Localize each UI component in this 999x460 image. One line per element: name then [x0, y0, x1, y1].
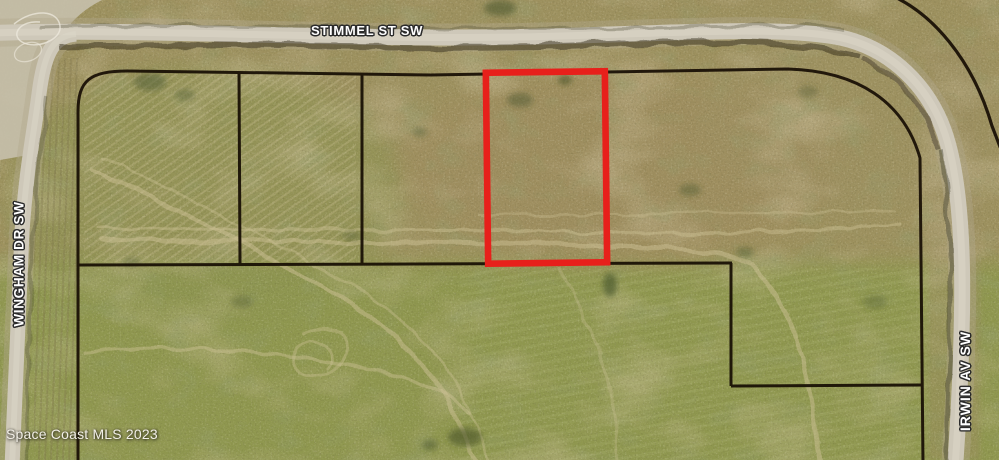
lot-divider-1	[239, 72, 240, 265]
street-label-irwin: IRWIN AV SW	[957, 331, 973, 431]
map-canvas	[0, 0, 999, 460]
street-label-wingham: WINGHAM DR SW	[12, 201, 27, 326]
street-label-stimmel: STIMMEL ST SW	[311, 23, 423, 38]
mls-watermark: Space Coast MLS 2023	[6, 426, 158, 442]
lot-line-horizontal-upper	[78, 263, 732, 265]
lot-line-horizontal-lower	[731, 385, 923, 386]
aerial-parcel-map: STIMMEL ST SW WINGHAM DR SW IRWIN AV SW …	[0, 0, 999, 460]
